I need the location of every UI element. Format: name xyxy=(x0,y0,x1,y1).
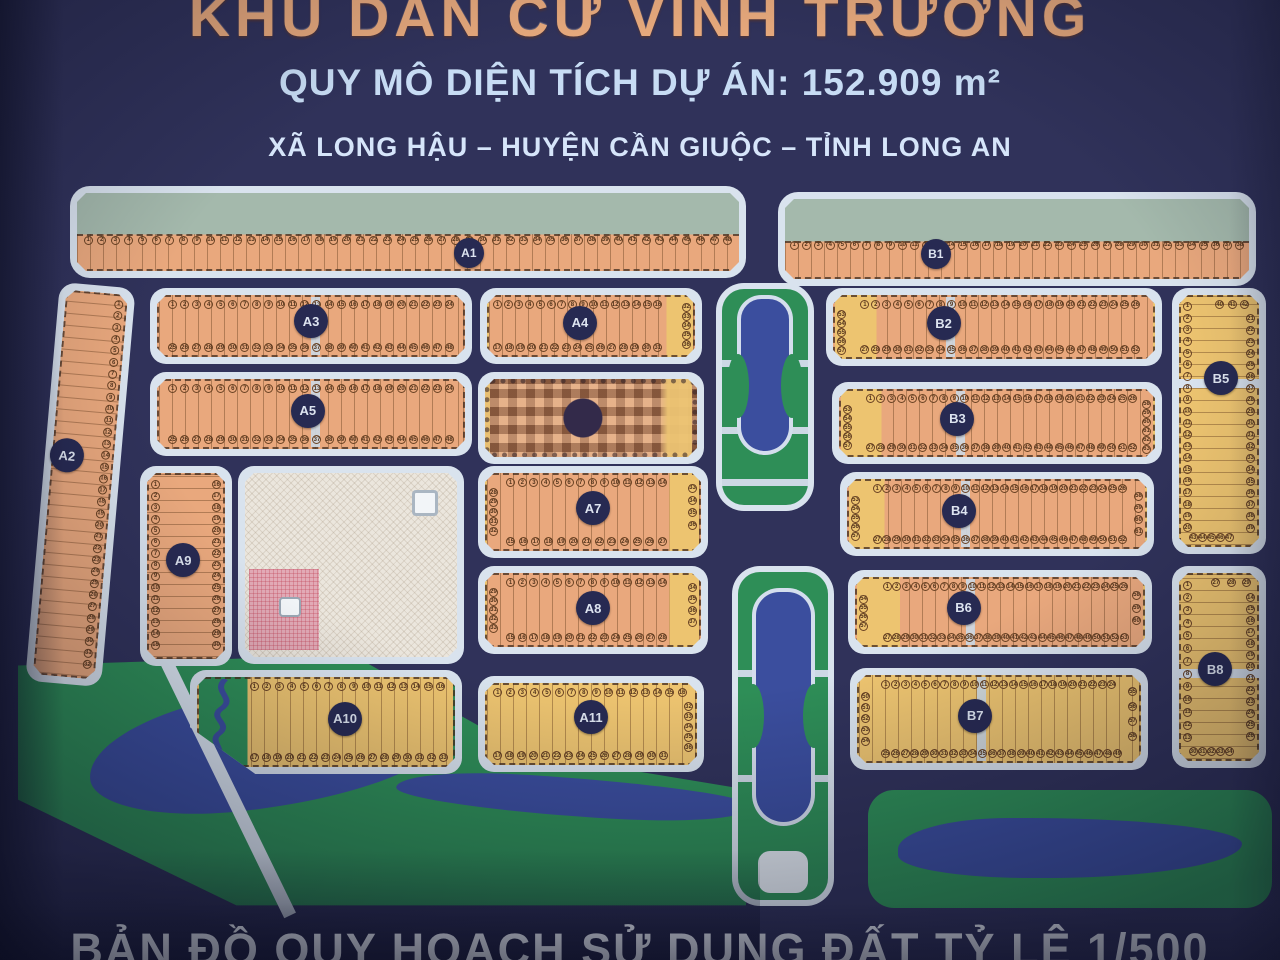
lot-number-circle: 14 xyxy=(411,682,420,691)
lot-number-circle: 10 xyxy=(1183,407,1192,416)
lot-number-circle: 19 xyxy=(1055,394,1064,403)
lot-number-circle: 4 xyxy=(902,484,911,493)
block-B3: 1234567891011121314151617181920212223242… xyxy=(832,382,1162,464)
lot-number-circle: 17 xyxy=(529,633,538,642)
block-label-A10: A10 xyxy=(328,702,362,736)
lot-number-circle: 13 xyxy=(151,618,160,627)
lot-number-circle: 54 xyxy=(861,737,870,746)
lot-number-circle: 4 xyxy=(911,680,920,689)
lot-number-circle: 12 xyxy=(611,300,620,309)
lot-number-circle: 22 xyxy=(588,633,597,642)
block-B7: 1234567891011121314151617181920212223242… xyxy=(850,668,1148,770)
lot-number-circle: 17 xyxy=(301,236,310,245)
lot-number-circle: 17 xyxy=(1030,484,1039,493)
lot-number-row: 1234567891011121314151617181920212223242… xyxy=(873,484,1128,493)
lot-number-circle: 43 xyxy=(1030,535,1039,544)
block-inner-A1: 1234567891011121314151617181920212223242… xyxy=(77,193,739,271)
lot-number-circle: 24 xyxy=(1067,241,1076,250)
lot-number-circle: 58 xyxy=(1142,400,1151,409)
lot-number-row: 123456789101112131415 xyxy=(151,480,160,649)
lot-number-circle: 5 xyxy=(1183,631,1192,640)
lot-number-circle: 26 xyxy=(356,753,365,762)
lot-number-circle: 28 xyxy=(892,633,901,642)
block-inner-PUBLIC xyxy=(245,473,457,657)
lot-number-circle: 12 xyxy=(1183,721,1192,730)
lot-number-circle: 24 xyxy=(620,537,629,546)
lot-number-circle: 58 xyxy=(1132,591,1141,600)
lot-number-circle: 9 xyxy=(600,478,609,487)
block-label-A3: A3 xyxy=(294,304,328,338)
lot-number-circle: 28 xyxy=(1246,396,1255,405)
lot-number-circle: 24 xyxy=(332,753,341,762)
lot-number-circle: 31 xyxy=(908,443,917,452)
lot-number-circle: 6 xyxy=(152,236,161,245)
lot-number-circle: 16 xyxy=(1023,300,1032,309)
lot-number-circle: 28 xyxy=(882,535,891,544)
lot-number-circle: 20 xyxy=(397,384,406,393)
lot-number-row: 404142 xyxy=(1215,300,1249,309)
lot-number-circle: 32 xyxy=(918,443,927,452)
lot-number-circle: 16 xyxy=(212,480,221,489)
lot-number-circle: 8 xyxy=(579,688,588,697)
lot-number-circle: 44 xyxy=(1039,535,1048,544)
lot-number-circle: 14 xyxy=(325,384,334,393)
lot-number-circle: 4 xyxy=(530,688,539,697)
lot-number-circle: 38 xyxy=(980,345,989,354)
lot-number-circle: 8 xyxy=(337,682,346,691)
lot-number-circle: 55 xyxy=(851,514,860,523)
lot-number-circle: 2 xyxy=(262,682,271,691)
block-inner-B7: 1234567891011121314151617181920212223242… xyxy=(857,675,1141,763)
lot-number-circle: 30 xyxy=(403,753,412,762)
lot-number-circle: 61 xyxy=(1142,427,1151,436)
block-A8: 1234567891011121314151617181920212223242… xyxy=(478,566,708,654)
block-A6 xyxy=(478,372,704,464)
lot-number-circle: 34 xyxy=(936,345,945,354)
lot-number-circle: 26 xyxy=(600,751,609,760)
lot-number-circle: 60 xyxy=(1134,515,1143,524)
lot-number-circle: 9 xyxy=(264,384,273,393)
lot-number-circle: 22 xyxy=(212,549,221,558)
lot-number-circle: 16 xyxy=(653,300,662,309)
lot-number-row: 1234567891011121314151617181920212223242… xyxy=(82,300,123,670)
lot-number-circle: 42 xyxy=(1020,535,1029,544)
lot-number-circle: 19 xyxy=(557,537,566,546)
lot-number-circle: 7 xyxy=(925,300,934,309)
lot-number-circle: 6 xyxy=(1183,644,1192,653)
lot-number-circle: 25 xyxy=(1120,300,1129,309)
lot-number-circle: 16 xyxy=(99,474,109,484)
lot-number-circle: 53 xyxy=(861,726,870,735)
block-label-B5: B5 xyxy=(1204,361,1238,395)
lot-number-circle: 1 xyxy=(860,300,869,309)
lot-number-circle: 24 xyxy=(1107,680,1116,689)
lot-number-circle: 29 xyxy=(216,435,225,444)
lot-number-circle: 53 xyxy=(837,310,846,319)
lot-number-circle: 31 xyxy=(1246,431,1255,440)
lot-number-circle: 27 xyxy=(1211,578,1220,587)
lot-number-circle: 47 xyxy=(1225,533,1234,542)
lot-number-circle: 5 xyxy=(536,300,545,309)
lot-number-circle: 22 xyxy=(421,384,430,393)
lot-number-circle: 19 xyxy=(329,236,338,245)
lot-number-circle: 23 xyxy=(433,300,442,309)
lot-number-circle: 29 xyxy=(887,443,896,452)
lot-number-circle: 12 xyxy=(635,478,644,487)
lot-number-circle: 62 xyxy=(1142,436,1151,445)
lot-number-circle: 27 xyxy=(87,602,97,612)
lot-number-circle: 14 xyxy=(1246,593,1255,602)
lot-number-circle: 16 xyxy=(1023,394,1032,403)
lot-number-circle: 6 xyxy=(555,688,564,697)
lot-number-circle: 12 xyxy=(387,682,396,691)
lot-number-circle: 10 xyxy=(589,300,598,309)
lot-number-circle: 16 xyxy=(1246,616,1255,625)
lot-number-circle: 31 xyxy=(240,435,249,444)
lot-number-circle: 42 xyxy=(642,236,651,245)
lot-number-circle: 6 xyxy=(109,358,119,368)
lot-number-circle: 4 xyxy=(1183,337,1192,346)
lot-number-circle: 6 xyxy=(1183,360,1192,369)
lot-number-circle: 16 xyxy=(349,300,358,309)
lot-number-circle: 16 xyxy=(678,688,687,697)
lot-number-circle: 42 xyxy=(1023,443,1032,452)
lot-number-circle: 18 xyxy=(212,503,221,512)
lot-number-circle: 26 xyxy=(1128,394,1137,403)
canal-path xyxy=(722,479,808,486)
lot-number-circle: 12 xyxy=(980,300,989,309)
lot-number-circle: 33 xyxy=(688,484,697,493)
lot-number-row: 171819202122232425262728293031 xyxy=(493,751,668,760)
lot-number-circle: 1 xyxy=(168,384,177,393)
lot-number-circle: 35 xyxy=(950,443,959,452)
lot-number-circle: 48 xyxy=(1103,749,1112,758)
lot-number-circle: 27 xyxy=(612,751,621,760)
lot-number-circle: 48 xyxy=(445,435,454,444)
lot-number-row: 12345678910111213141516 xyxy=(250,682,446,691)
lot-number-circle: 3 xyxy=(529,578,538,587)
lot-number-circle: 38 xyxy=(587,236,596,245)
lot-number-circle: 52 xyxy=(1128,443,1137,452)
lot-number-circle: 18 xyxy=(544,537,553,546)
lot-number-circle: 14 xyxy=(1001,300,1010,309)
lot-number-circle: 13 xyxy=(1183,733,1192,742)
lot-number-circle: 46 xyxy=(1084,749,1093,758)
lot-number-circle: 17 xyxy=(98,485,108,495)
lot-number-circle: 25 xyxy=(168,435,177,444)
lot-number-circle: 20 xyxy=(1065,394,1074,403)
lot-number-circle: 8 xyxy=(1183,384,1192,393)
lot-number-circle: 39 xyxy=(992,443,1001,452)
lot-number-circle: 18 xyxy=(505,751,514,760)
lot-number-row: 2526272829303132333435363738394041424344… xyxy=(168,343,454,352)
lot-number-circle: 15 xyxy=(665,688,674,697)
lot-number-circle: 23 xyxy=(564,751,573,760)
lot-number-circle: 38 xyxy=(325,343,334,352)
lot-number-circle: 23 xyxy=(1089,484,1098,493)
lot-number-circle: 37 xyxy=(974,633,983,642)
lot-number-circle: 35 xyxy=(682,331,691,340)
lot-number-circle: 34 xyxy=(688,583,697,592)
lot-number-row: 2728293031323334353637383940414243444546… xyxy=(883,633,1129,642)
lot-number-circle: 37 xyxy=(971,535,980,544)
lot-number-row: 1234567891011121314151617181920212223242… xyxy=(84,236,733,245)
lot-number-circle: 13 xyxy=(312,384,321,393)
lot-number-row: 58596061 xyxy=(1134,492,1143,537)
lot-number-circle: 28 xyxy=(86,613,96,623)
lot-number-circle: 15 xyxy=(1183,465,1192,474)
lot-number-circle: 15 xyxy=(1012,300,1021,309)
map-caption: BẢN ĐỒ QUY HOẠCH SỬ DỤNG ĐẤT TỶ LỆ 1/500 xyxy=(0,924,1280,960)
lot-number-circle: 19 xyxy=(1049,484,1058,493)
lot-number-circle: 3 xyxy=(887,394,896,403)
lot-number-circle: 33 xyxy=(1175,241,1184,250)
lot-number-circle: 29 xyxy=(635,751,644,760)
lot-number-circle: 10 xyxy=(958,300,967,309)
lot-number-row: 1234567891011121314151617181920212223242… xyxy=(866,394,1137,403)
lot-number-circle: 36 xyxy=(560,236,569,245)
lot-number-circle: 6 xyxy=(931,680,940,689)
lot-number-circle: 36 xyxy=(300,343,309,352)
lot-number-circle: 29 xyxy=(489,498,498,507)
lot-number-circle: 19 xyxy=(385,384,394,393)
lot-number-circle: 50 xyxy=(1107,443,1116,452)
lot-number-circle: 44 xyxy=(397,435,406,444)
lot-number-circle: 10 xyxy=(276,300,285,309)
lot-number-circle: 12 xyxy=(1183,430,1192,439)
lot-number-circle: 45 xyxy=(1207,533,1216,542)
block-label-B7: B7 xyxy=(958,699,992,733)
block-B1: 1234567891011121314151617181920212223242… xyxy=(778,192,1256,286)
block-label-B3: B3 xyxy=(940,402,974,436)
lot-number-circle: 47 xyxy=(1094,749,1103,758)
lot-number-circle: 46 xyxy=(696,236,705,245)
lot-number-circle: 16 xyxy=(349,384,358,393)
lot-number-circle: 1 xyxy=(790,241,799,250)
lot-number-circle: 23 xyxy=(321,753,330,762)
lot-number-circle: 21 xyxy=(409,384,418,393)
lot-number-circle: 18 xyxy=(541,633,550,642)
lot-number-circle: 10 xyxy=(1183,695,1192,704)
lot-number-circle: 5 xyxy=(216,384,225,393)
lot-number-circle: 13 xyxy=(999,680,1008,689)
lot-number-circle: 28 xyxy=(871,345,880,354)
lot-number-circle: 10 xyxy=(968,582,977,591)
lot-number-circle: 25 xyxy=(344,753,353,762)
lot-number-circle: 29 xyxy=(882,345,891,354)
lot-number-circle: 30 xyxy=(228,435,237,444)
lot-number-circle: 6 xyxy=(228,300,237,309)
lot-number-circle: 9 xyxy=(600,578,609,587)
lot-number-circle: 51 xyxy=(1101,633,1110,642)
lot-number-circle: 2 xyxy=(180,300,189,309)
lot-number-row: 34353637 xyxy=(688,583,697,626)
lot-number-circle: 31 xyxy=(489,517,498,526)
lot-number-circle: 25 xyxy=(588,751,597,760)
lot-number-circle: 15 xyxy=(506,537,515,546)
lot-number-circle: 32 xyxy=(427,753,436,762)
lot-number-circle: 27 xyxy=(212,606,221,615)
lot-number-circle: 14 xyxy=(1183,453,1192,462)
canal xyxy=(732,566,834,906)
lot-number-circle: 49 xyxy=(1113,749,1122,758)
lot-number-circle: 13 xyxy=(990,484,999,493)
lot-number-circle: 12 xyxy=(103,427,113,437)
lot-number-circle: 25 xyxy=(1246,720,1255,729)
lot-number-circle: 15 xyxy=(424,682,433,691)
lot-number-circle: 8 xyxy=(252,300,261,309)
lot-number-circle: 21 xyxy=(1078,680,1087,689)
lot-number-circle: 9 xyxy=(951,484,960,493)
lot-number-circle: 23 xyxy=(1097,394,1106,403)
lot-number-circle: 36 xyxy=(688,521,697,530)
lot-number-circle: 32 xyxy=(928,633,937,642)
lot-number-circle: 5 xyxy=(138,236,147,245)
lot-number-circle: 36 xyxy=(960,443,969,452)
lot-number-circle: 26 xyxy=(645,537,654,546)
canal-waist-left xyxy=(727,354,749,418)
lot-number-circle: 2 xyxy=(876,394,885,403)
block-inner-B6: 1234567891011121314151617181920212223242… xyxy=(855,577,1145,647)
lot-number-circle: 21 xyxy=(1077,300,1086,309)
lot-number-circle: 32 xyxy=(252,435,261,444)
lot-number-circle: 1 xyxy=(168,300,177,309)
block-A4: 1234567891011121314151617181920212223242… xyxy=(480,288,702,364)
lot-number-circle: 20 xyxy=(342,236,351,245)
lot-number-circle: 24 xyxy=(573,343,582,352)
lot-number-circle: 34 xyxy=(276,343,285,352)
block-inner-A10: 1234567891011121314151617181920212223242… xyxy=(197,677,455,767)
lot-number-circle: 7 xyxy=(165,236,174,245)
lot-number-circle: 32 xyxy=(684,702,693,711)
lot-number-row: 2829303132 xyxy=(489,488,498,535)
lot-number-circle: 31 xyxy=(492,236,501,245)
lot-number-circle: 38 xyxy=(1007,749,1016,758)
lot-number-circle: 28 xyxy=(204,435,213,444)
lot-number-circle: 11 xyxy=(1183,419,1192,428)
lot-number-circle: 3 xyxy=(1183,325,1192,334)
lot-number-circle: 2 xyxy=(882,484,891,493)
lot-number-circle: 51 xyxy=(1120,345,1129,354)
lot-number-circle: 24 xyxy=(1246,709,1255,718)
lot-number-circle: 32 xyxy=(506,236,515,245)
lot-number-circle: 44 xyxy=(397,343,406,352)
lot-number-circle: 30 xyxy=(84,636,94,646)
block-label-B2: B2 xyxy=(927,306,961,340)
lot-number-circle: 46 xyxy=(1066,345,1075,354)
lot-number-circle: 6 xyxy=(850,241,859,250)
lot-number-circle: 33 xyxy=(937,633,946,642)
lot-number-circle: 40 xyxy=(1001,345,1010,354)
project-location-line: XÃ LONG HẬU – HUYỆN CẦN GIUỘC – TỈNH LON… xyxy=(0,132,1280,163)
lot-number-circle: 34 xyxy=(276,435,285,444)
lot-number-circle: 28 xyxy=(1115,241,1124,250)
lot-number-circle: 20 xyxy=(1019,241,1028,250)
lot-number-circle: 28 xyxy=(380,753,389,762)
lot-number-circle: 33 xyxy=(929,443,938,452)
lot-number-circle: 10 xyxy=(898,241,907,250)
lot-number-circle: 33 xyxy=(439,753,448,762)
lot-number-circle: 15 xyxy=(100,462,110,472)
lot-number-circle: 19 xyxy=(385,300,394,309)
lot-number-circle: 15 xyxy=(1019,680,1028,689)
lot-number-circle: 40 xyxy=(1026,749,1035,758)
lot-number-circle: 5 xyxy=(1183,349,1192,358)
lot-number-circle: 12 xyxy=(151,606,160,615)
lot-number-circle: 18 xyxy=(1048,680,1057,689)
lot-number-circle: 26 xyxy=(180,343,189,352)
lot-number-circle: 18 xyxy=(97,497,107,507)
lot-number-circle: 8 xyxy=(939,394,948,403)
lot-number-circle: 24 xyxy=(445,300,454,309)
lot-number-circle: 6 xyxy=(922,484,931,493)
lot-number-circle: 37 xyxy=(1223,241,1232,250)
lot-number-circle: 23 xyxy=(600,633,609,642)
lot-number-circle: 15 xyxy=(506,633,515,642)
lot-number-circle: 4 xyxy=(911,582,920,591)
lot-number-circle: 55 xyxy=(1128,687,1137,696)
lot-number-circle: 4 xyxy=(541,578,550,587)
lot-number-circle: 27 xyxy=(368,753,377,762)
lot-number-circle: 35 xyxy=(546,236,555,245)
lot-number-circle: 4 xyxy=(124,236,133,245)
lot-number-circle: 34 xyxy=(947,633,956,642)
lot-number-circle: 23 xyxy=(1246,697,1255,706)
lot-number-circle: 37 xyxy=(971,443,980,452)
lot-number-circle: 30 xyxy=(489,508,498,517)
lot-number-circle: 6 xyxy=(151,538,160,547)
lot-number-circle: 25 xyxy=(633,537,642,546)
lot-number-circle: 5 xyxy=(921,680,930,689)
utility-square-icon xyxy=(412,490,438,516)
lot-number-row: 2930313233 xyxy=(489,588,498,633)
lot-number-circle: 13 xyxy=(1183,442,1192,451)
lot-number-circle: 39 xyxy=(990,345,999,354)
lot-number-circle: 5 xyxy=(542,688,551,697)
lot-number-circle: 29 xyxy=(1246,407,1255,416)
lot-number-circle: 22 xyxy=(1246,326,1255,335)
lot-number-circle: 9 xyxy=(106,393,116,403)
lot-number-circle: 23 xyxy=(562,343,571,352)
lot-number-circle: 42 xyxy=(1046,749,1055,758)
lot-number-circle: 17 xyxy=(1034,582,1043,591)
lot-number-circle: 8 xyxy=(252,384,261,393)
lot-number-row: 5354555657 xyxy=(843,405,852,441)
lot-number-circle: 39 xyxy=(337,343,346,352)
lot-number-circle: 33 xyxy=(264,435,273,444)
lot-number-circle: 39 xyxy=(990,535,999,544)
lot-number-circle: 19 xyxy=(1246,651,1255,660)
lot-number-circle: 45 xyxy=(409,435,418,444)
lot-number-circle: 47 xyxy=(433,435,442,444)
lot-number-circle: 11 xyxy=(910,241,919,250)
lot-number-circle: 11 xyxy=(623,578,632,587)
lot-number-circle: 6 xyxy=(915,300,924,309)
lot-number-circle: 28 xyxy=(1227,578,1236,587)
lot-number-circle: 18 xyxy=(994,241,1003,250)
lot-number-circle: 18 xyxy=(1039,484,1048,493)
lot-number-circle: 25 xyxy=(1118,394,1127,403)
lot-number-circle: 20 xyxy=(565,633,574,642)
lot-number-circle: 51 xyxy=(1118,443,1127,452)
lot-number-circle: 41 xyxy=(1010,633,1019,642)
lot-number-circle: 43 xyxy=(385,343,394,352)
lot-number-circle: 4 xyxy=(826,241,835,250)
block-inner-B5: 1234567891011121314151617181920212223242… xyxy=(1179,295,1259,547)
block-A3: 1234567891011121314151617181920212223242… xyxy=(150,288,472,364)
lot-number-circle: 26 xyxy=(596,343,605,352)
lot-number-circle: 16 xyxy=(1025,582,1034,591)
